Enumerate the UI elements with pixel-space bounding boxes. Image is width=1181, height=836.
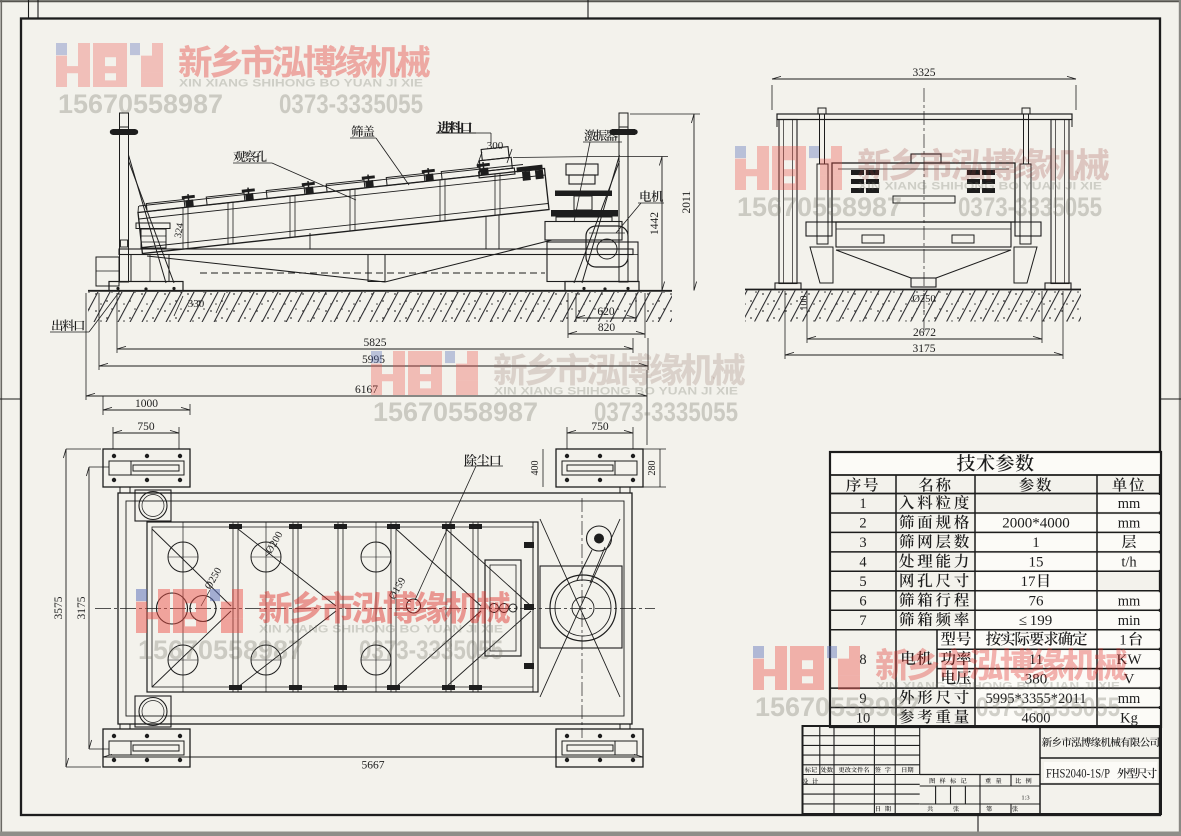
- svg-text:≤: ≤: [1019, 613, 1027, 629]
- svg-text:XIN XIANG SHIHONG BO YUAN JI X: XIN XIANG SHIHONG BO YUAN JI XIE: [876, 681, 1120, 693]
- svg-text:XIN XIANG SHIHONG BO YUAN JI X: XIN XIANG SHIHONG BO YUAN JI XIE: [179, 78, 423, 90]
- svg-text:4: 4: [859, 555, 867, 571]
- svg-text:XIN XIANG SHIHONG BO YUAN JI X: XIN XIANG SHIHONG BO YUAN JI XIE: [259, 624, 503, 636]
- svg-text:3: 3: [859, 535, 866, 551]
- svg-text:1: 1: [859, 496, 866, 512]
- svg-text:7: 7: [859, 613, 866, 629]
- svg-text:1: 1: [1032, 535, 1040, 551]
- svg-text:8: 8: [859, 652, 866, 668]
- svg-text:1442: 1442: [649, 212, 661, 235]
- svg-text:XIN XIANG SHIHONG BO YUAN JI X: XIN XIANG SHIHONG BO YUAN JI XIE: [494, 386, 738, 398]
- svg-text:5: 5: [859, 574, 866, 590]
- svg-text:750: 750: [137, 421, 155, 433]
- svg-text:15670558987: 15670558987: [737, 192, 902, 222]
- svg-text:mm: mm: [1118, 594, 1141, 610]
- svg-text:820: 820: [598, 322, 616, 334]
- svg-text:0373-3335055: 0373-3335055: [958, 192, 1102, 222]
- svg-text:3575: 3575: [53, 596, 65, 619]
- svg-text:15670558987: 15670558987: [755, 692, 920, 722]
- svg-text:1:3: 1:3: [1021, 795, 1029, 802]
- svg-text:2: 2: [859, 516, 866, 532]
- svg-text:2011: 2011: [681, 191, 693, 214]
- svg-text:1: 1: [1119, 632, 1126, 648]
- svg-text:1000: 1000: [135, 398, 158, 410]
- svg-text:3175: 3175: [76, 596, 88, 619]
- svg-text:15670558987: 15670558987: [373, 397, 538, 427]
- svg-text:17: 17: [1021, 574, 1037, 590]
- svg-text:XIN XIANG SHIHONG BO YUAN JI X: XIN XIANG SHIHONG BO YUAN JI XIE: [858, 181, 1102, 193]
- svg-text:5667: 5667: [362, 760, 385, 772]
- svg-text:3325: 3325: [913, 67, 936, 79]
- svg-text:mm: mm: [1118, 496, 1141, 512]
- svg-text:0373-3335055: 0373-3335055: [279, 89, 423, 119]
- svg-text:15: 15: [1029, 555, 1044, 571]
- svg-text:76: 76: [1029, 594, 1045, 610]
- svg-text:620: 620: [597, 306, 615, 318]
- svg-text:300: 300: [487, 140, 504, 152]
- svg-text:15670558987: 15670558987: [138, 635, 303, 665]
- svg-text:mm: mm: [1118, 691, 1141, 707]
- svg-text:0373-3335055: 0373-3335055: [976, 692, 1120, 722]
- svg-text:3175: 3175: [913, 343, 936, 355]
- svg-text:15670558987: 15670558987: [58, 89, 223, 119]
- svg-text:Kg: Kg: [1120, 710, 1138, 726]
- svg-text:mm: mm: [1118, 516, 1141, 532]
- svg-text:t/h: t/h: [1121, 555, 1137, 571]
- svg-text:6: 6: [859, 594, 866, 610]
- svg-text:5825: 5825: [364, 337, 387, 349]
- svg-text:400: 400: [530, 461, 541, 476]
- svg-text:2000*4000: 2000*4000: [1002, 516, 1070, 532]
- svg-text:330: 330: [188, 298, 205, 310]
- svg-text:199: 199: [1030, 613, 1053, 629]
- svg-text:100: 100: [799, 296, 810, 311]
- svg-text:0373-3335055: 0373-3335055: [594, 397, 738, 427]
- svg-text:Ø250: Ø250: [912, 294, 935, 305]
- svg-text:280: 280: [647, 461, 658, 476]
- svg-text:FHS2040-1S/P: FHS2040-1S/P: [1046, 767, 1110, 781]
- svg-text:min: min: [1118, 613, 1141, 629]
- svg-text:2672: 2672: [913, 327, 936, 339]
- svg-text:0373-3335055: 0373-3335055: [359, 635, 503, 665]
